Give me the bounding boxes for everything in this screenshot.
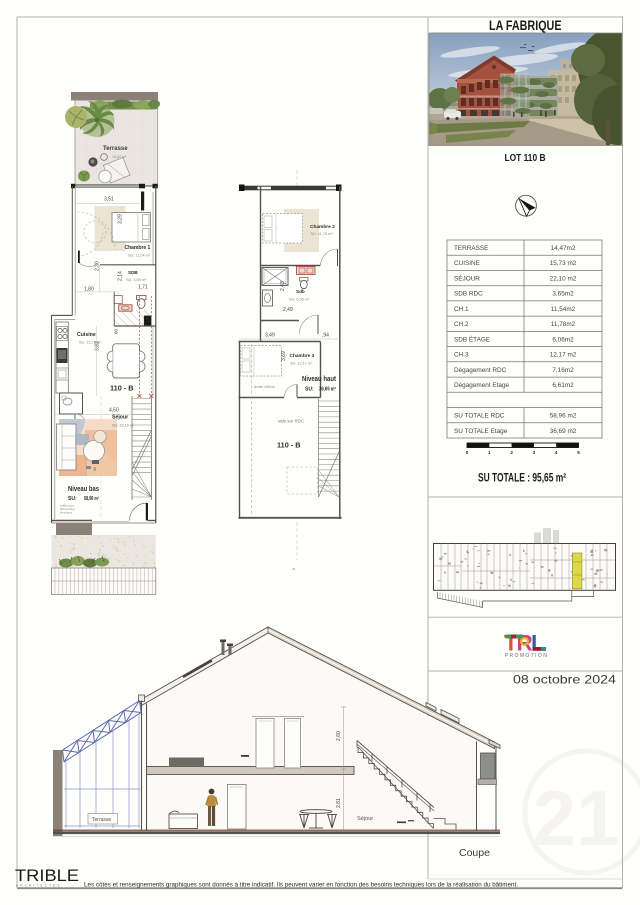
svg-text:3,49: 3,49 (265, 333, 275, 339)
svg-text:3,69: 3,69 (281, 351, 287, 361)
svg-text:SU:: SU: (68, 496, 77, 502)
svg-text:3,65m2: 3,65m2 (552, 291, 574, 298)
svg-text:CH.3: CH.3 (454, 352, 469, 359)
svg-text:3: 3 (533, 450, 536, 455)
svg-text:PROMOTION: PROMOTION (505, 653, 548, 659)
svg-text:Coupe: Coupe (459, 847, 490, 859)
svg-text:Niveau bas: Niveau bas (68, 484, 99, 493)
svg-text:L: L (531, 631, 545, 656)
svg-text:6,06m2: 6,06m2 (552, 336, 574, 343)
svg-text:CH.2: CH.2 (454, 321, 469, 328)
svg-text:Dégagement Etage: Dégagement Etage (454, 382, 510, 389)
svg-text:SDB RDC: SDB RDC (454, 291, 483, 298)
svg-text:Terrasse: Terrasse (92, 817, 111, 823)
svg-text:LA FABRIQUE: LA FABRIQUE (489, 18, 562, 33)
svg-text:110 - B: 110 - B (110, 384, 134, 393)
svg-text:SU: 12,17 m²: SU: 12,17 m² (290, 362, 313, 366)
svg-text:TERRASSE: TERRASSE (454, 245, 488, 252)
svg-text:58,96 m2: 58,96 m2 (550, 413, 577, 420)
svg-text:Dégagement RDC: Dégagement RDC (454, 367, 507, 374)
svg-text:14,47m2: 14,47m2 (551, 245, 576, 252)
svg-text:SDB: SDB (128, 270, 138, 275)
svg-text:60: 60 (114, 328, 119, 334)
svg-text:électrique: électrique (60, 511, 73, 515)
svg-text:5: 5 (577, 450, 580, 455)
svg-text:limite 180cm: limite 180cm (254, 385, 275, 389)
svg-text:3,29: 3,29 (118, 214, 124, 224)
svg-text:36,69 m²: 36,69 m² (319, 387, 336, 393)
svg-text:36,69 m2: 36,69 m2 (550, 428, 577, 435)
svg-text:Séjour: Séjour (112, 415, 128, 421)
svg-text:2,43: 2,43 (280, 281, 286, 291)
svg-text:CH.1: CH.1 (454, 306, 469, 313)
svg-text:2,30: 2,30 (95, 261, 101, 271)
svg-text:2,81: 2,81 (336, 798, 342, 808)
svg-text:4: 4 (555, 450, 558, 455)
svg-text:vide sur RDC: vide sur RDC (278, 419, 305, 424)
svg-text:SU TOTALE RDC: SU TOTALE RDC (454, 413, 505, 420)
svg-text:,94: ,94 (322, 333, 329, 339)
svg-text:SÉJOUR: SÉJOUR (454, 274, 480, 283)
svg-text:7,16m2: 7,16m2 (552, 367, 574, 374)
svg-text:2,60: 2,60 (336, 731, 342, 741)
svg-text:TRIBLE: TRIBLE (15, 867, 79, 885)
svg-text:Terrasse: Terrasse (103, 146, 128, 152)
svg-text:Chambre 3: Chambre 3 (290, 353, 315, 359)
svg-text:2,14: 2,14 (118, 271, 124, 281)
svg-text:SU: 11,78 m²: SU: 11,78 m² (311, 232, 334, 236)
svg-text:SU: 3,65 m²: SU: 3,65 m² (126, 278, 147, 282)
svg-text:Les côtes et renseignements gr: Les côtes et renseignements graphiques s… (84, 882, 518, 889)
svg-text:Chambre 1: Chambre 1 (125, 245, 151, 251)
svg-text:Sdb: Sdb (296, 289, 305, 294)
svg-text:ARCHITECTES: ARCHITECTES (16, 884, 62, 888)
svg-text:Séjour: Séjour (357, 816, 373, 822)
svg-text:1,80: 1,80 (84, 287, 94, 293)
svg-text:80: 80 (93, 467, 97, 471)
svg-text:6,61m2: 6,61m2 (552, 382, 574, 389)
svg-text:11,78m2: 11,78m2 (551, 321, 576, 328)
svg-text:SU TOTALE Etage: SU TOTALE Etage (454, 428, 508, 435)
svg-text:08 octobre 2024: 08 octobre 2024 (513, 673, 617, 687)
svg-text:SU TOTALE : 95,65 m²: SU TOTALE : 95,65 m² (478, 471, 566, 485)
svg-text:SU:: SU: (305, 387, 314, 393)
svg-text:21: 21 (533, 774, 620, 862)
svg-text:4,50: 4,50 (109, 408, 119, 414)
svg-text:3,83: 3,83 (95, 341, 101, 351)
svg-text:2,49: 2,49 (283, 307, 293, 313)
svg-text:Cuisine: Cuisine (77, 332, 96, 338)
svg-text:LOT 110 B: LOT 110 B (505, 153, 546, 164)
svg-text:1,71: 1,71 (138, 285, 148, 291)
svg-text:22,10 m2: 22,10 m2 (550, 276, 577, 283)
svg-text:110 - B: 110 - B (277, 441, 301, 450)
svg-text:Chambre 2: Chambre 2 (310, 224, 335, 230)
svg-text:CUISINE: CUISINE (454, 260, 480, 267)
svg-text:3,51: 3,51 (104, 197, 114, 203)
svg-text:SDB ÉTAGE: SDB ÉTAGE (454, 334, 490, 343)
svg-text:SU: 11,54 m²: SU: 11,54 m² (128, 254, 151, 258)
svg-text:15,73 m2: 15,73 m2 (550, 260, 577, 267)
svg-text:0: 0 (466, 450, 469, 455)
svg-text:58,96 m²: 58,96 m² (84, 496, 99, 502)
svg-text:1: 1 (488, 450, 491, 455)
svg-text:11,54m2: 11,54m2 (551, 306, 576, 313)
svg-text:Niveau haut: Niveau haut (302, 374, 336, 383)
svg-text:SU: 6,06 m²: SU: 6,06 m² (289, 298, 310, 302)
svg-text:12,17 m2: 12,17 m2 (550, 352, 577, 359)
svg-text:2: 2 (510, 450, 513, 455)
svg-text:14,47 m²: 14,47 m² (112, 155, 127, 159)
